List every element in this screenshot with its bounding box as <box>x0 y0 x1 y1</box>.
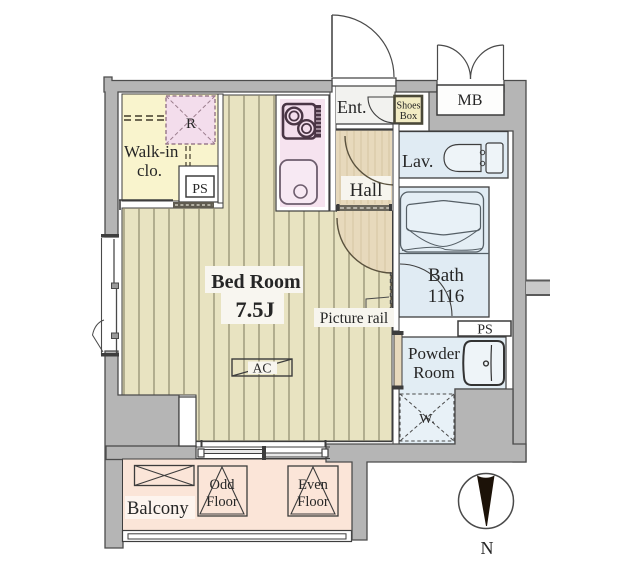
svg-text:Bed Room: Bed Room <box>211 271 301 293</box>
svg-text:MB: MB <box>458 92 483 109</box>
svg-text:Odd: Odd <box>210 477 236 493</box>
svg-text:Floor: Floor <box>206 494 238 510</box>
svg-text:Lav.: Lav. <box>402 151 433 171</box>
svg-text:Walk-in: Walk-in <box>124 142 179 161</box>
svg-text:Shoes: Shoes <box>397 101 421 112</box>
svg-text:Ent.: Ent. <box>337 97 367 117</box>
svg-text:7.5J: 7.5J <box>235 297 274 322</box>
svg-text:PS: PS <box>477 323 493 338</box>
svg-text:Even: Even <box>298 477 329 493</box>
svg-text:Balcony: Balcony <box>127 499 189 519</box>
svg-text:N: N <box>481 538 494 558</box>
svg-text:Powder: Powder <box>408 344 460 363</box>
svg-text:Box: Box <box>400 111 418 122</box>
svg-text:Hall: Hall <box>350 180 383 201</box>
svg-text:PS: PS <box>192 182 208 197</box>
svg-text:Picture rail: Picture rail <box>320 310 388 327</box>
svg-text:clo.: clo. <box>137 161 162 180</box>
svg-text:Room: Room <box>413 363 455 382</box>
svg-text:Floor: Floor <box>297 494 329 510</box>
svg-text:R: R <box>186 116 196 132</box>
svg-text:AC: AC <box>253 361 272 376</box>
svg-text:W.: W. <box>419 412 434 427</box>
svg-text:1116: 1116 <box>428 286 465 307</box>
